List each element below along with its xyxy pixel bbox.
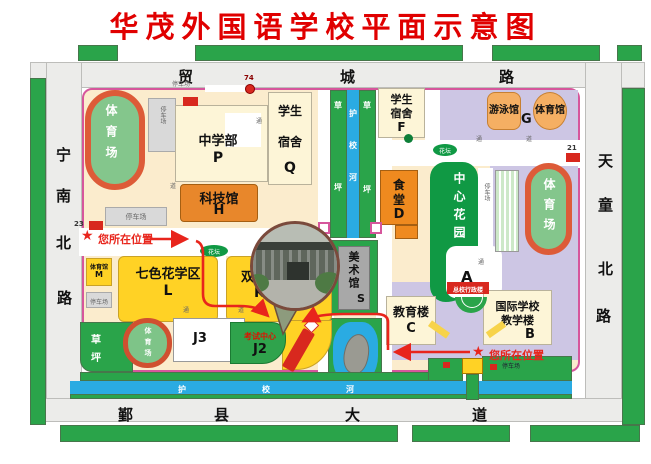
verge-right [622, 88, 645, 425]
bus-stop-74-icon [245, 84, 255, 94]
gate-walkway [466, 374, 479, 400]
verge-top [617, 45, 642, 61]
exam-center-letter: J2 [238, 342, 282, 357]
g-letter: G [521, 112, 532, 127]
path-label: 道 [170, 181, 176, 190]
you-are-here-label: 您所在位置 [489, 347, 544, 363]
stadium-northwest-label: 体育场 [103, 104, 120, 180]
dorm-q-letter: Q [270, 160, 310, 176]
rainbow-letter: L [120, 283, 216, 299]
lawn-strip [330, 90, 347, 238]
gym-m-letter: M [86, 270, 112, 279]
verge-left [30, 78, 46, 425]
north-gate [205, 85, 245, 92]
path-label: 通 [478, 257, 484, 266]
lawn-label: 坪 [363, 184, 371, 195]
parking-label: 停车场 [115, 212, 157, 222]
flowerbed-label: 花坛 [433, 146, 457, 155]
canteen-letter: D [391, 207, 407, 222]
road-right-char: 北 [598, 258, 613, 279]
path-label: 道 [238, 305, 244, 314]
page-title: 华茂外国语学校平面示意图 [0, 4, 651, 46]
road-maocheng [30, 62, 645, 88]
education-label: 教育楼 [387, 303, 435, 320]
exam-center-label: 考试中心 [238, 331, 282, 342]
bus-stop-23: 23 [74, 220, 84, 228]
parking-label: 停车场 [482, 183, 491, 223]
lawn-label: 草 [363, 100, 371, 111]
rainbow-label: 七色花学区 [120, 263, 216, 282]
bridge-gate [370, 222, 382, 234]
road-top-char: 路 [499, 66, 514, 87]
river-verge [70, 394, 572, 399]
lawn-label: 坪 [91, 349, 101, 364]
campus-map: 华茂外国语学校平面示意图 贸 城 路 宁 南 北 路 天 童 北 路 鄞 县 大… [0, 0, 651, 464]
you-are-here-label: 您所在位置 [98, 231, 153, 247]
canal-bottom [70, 381, 572, 394]
road-tiantongbei [585, 62, 622, 422]
guard-box [443, 362, 450, 368]
road-left-char: 北 [56, 232, 71, 253]
stadium-east-label: 体育场 [541, 178, 558, 244]
building-photo-inset [250, 221, 340, 311]
canteen-building [395, 225, 418, 239]
lawn-label: 坪 [334, 182, 342, 193]
guard-box [490, 364, 497, 370]
road-top-char: 城 [340, 66, 355, 87]
j3-label: J3 [185, 331, 215, 346]
you-are-here-star: ★ [472, 344, 485, 360]
verge-bottom [412, 425, 510, 442]
road-left-char: 宁 [56, 144, 71, 165]
e-building [495, 170, 519, 252]
parking-label: 停车场 [86, 297, 112, 306]
path-label: 通 [476, 134, 482, 143]
verge-bottom [530, 425, 640, 442]
you-are-here-star: ★ [81, 228, 94, 244]
science-letter: H [182, 203, 256, 218]
parking-label: 停车场 [172, 79, 190, 88]
road-bottom-char: 道 [472, 404, 487, 425]
road-bottom-char: 大 [345, 404, 360, 425]
middle-school-letter: P [178, 150, 258, 166]
art-museum-letter: S [357, 292, 365, 305]
parking-label: 停车场 [158, 106, 167, 146]
dorm-f-label: 宿舍 [380, 105, 423, 121]
intl-school-letter: B [525, 327, 535, 342]
path-label: 通 [183, 305, 189, 314]
road-bottom-char: 鄞 [118, 404, 133, 425]
guard-box [183, 97, 198, 106]
bus-stop-21: 21 [567, 144, 577, 152]
canal-label: 校 [349, 140, 357, 151]
verge-top [78, 45, 118, 61]
gym-ne-label: 体育馆 [530, 101, 570, 116]
lawn-strip [359, 90, 376, 238]
bus-stop-21-icon [566, 153, 580, 162]
path-label: 道 [526, 134, 532, 143]
bus-stop-74: 74 [244, 74, 254, 82]
tree [404, 134, 413, 143]
road-left-char: 南 [56, 185, 71, 206]
road-right-char: 天 [598, 150, 613, 171]
education-letter: C [387, 321, 435, 336]
path-label: 通 [256, 116, 262, 125]
flowerbed-label: 花坛 [200, 247, 228, 256]
south-gate-house [462, 358, 483, 374]
dorm-q-label: 宿舍 [270, 133, 310, 150]
canal-label: 护 [349, 108, 357, 119]
road-bottom-char: 县 [214, 404, 229, 425]
dorm-q-label: 学生 [270, 102, 310, 119]
canal-label: 河 [349, 172, 357, 183]
road-right-char: 童 [598, 194, 613, 215]
dorm-f-letter: F [380, 120, 423, 134]
lawn-label: 草 [334, 100, 342, 111]
verge-bottom [60, 425, 398, 442]
canteen-label: 堂 [391, 191, 407, 208]
south-lawn [80, 372, 430, 381]
art-museum-label: 美术馆 [345, 251, 361, 297]
verge-top [195, 45, 463, 61]
verge-top [492, 45, 600, 61]
admin-box-label: 总校行政楼 [447, 285, 489, 294]
road-right-char: 路 [596, 305, 611, 326]
stadium-southwest-label: 体育场 [143, 327, 153, 361]
swim-label: 游泳馆 [484, 101, 524, 116]
lawn-label: 草 [91, 331, 101, 346]
middle-school-label: 中学部 [178, 130, 258, 149]
road-left-char: 路 [57, 287, 72, 308]
campus-road [425, 90, 440, 140]
